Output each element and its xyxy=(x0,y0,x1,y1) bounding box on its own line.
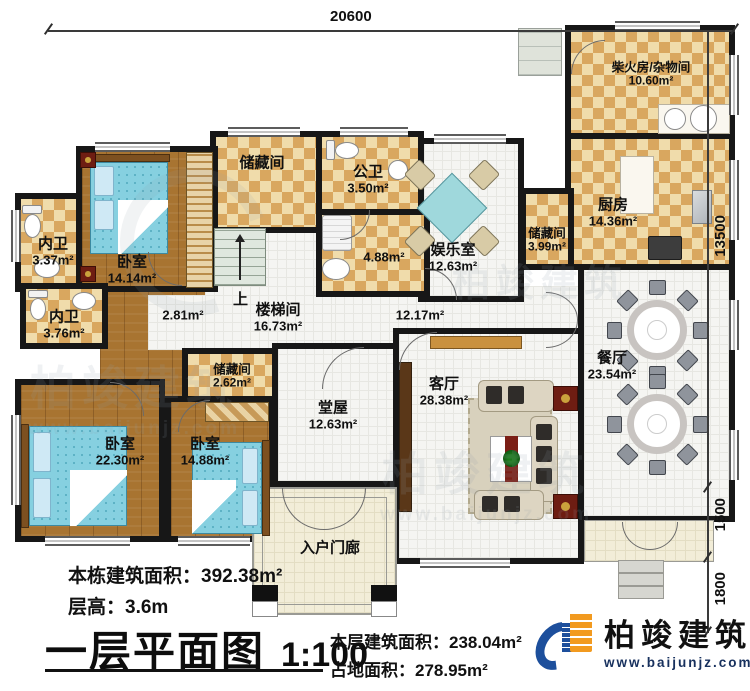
sink xyxy=(388,160,408,180)
dim-right-mid: 1500 xyxy=(712,498,729,531)
bed-headboard xyxy=(262,440,270,536)
dim-right-upper: 13500 xyxy=(712,215,729,257)
label-bath-337: 内卫 3.37m² xyxy=(32,236,73,267)
label-storage-kitchen: 储藏间 3.99m² xyxy=(528,226,566,253)
label-bath-376: 内卫 3.76m² xyxy=(43,309,84,340)
floor-area-stat: 本层建筑面积：238.04m² xyxy=(330,628,522,653)
label-main-hall: 堂屋 12.63m² xyxy=(309,400,357,431)
bed-sheet xyxy=(70,470,127,526)
logo-building-orange xyxy=(570,612,592,652)
window xyxy=(729,430,739,480)
kitchen-sink-unit xyxy=(692,190,712,224)
porch-pillar xyxy=(371,585,397,601)
bed-pillow xyxy=(242,490,258,526)
bed-headboard xyxy=(88,154,170,162)
label-stair-up: 上 xyxy=(233,288,248,309)
logo-url: www.baijunjz.com xyxy=(604,656,750,670)
window xyxy=(729,160,739,240)
right-dimension-line xyxy=(707,30,709,633)
bed-sheet xyxy=(192,480,236,534)
label-bedroom-1488: 卧室 14.88m² xyxy=(181,436,229,467)
toilet xyxy=(326,140,335,160)
dining-chair xyxy=(649,280,666,295)
label-dining: 餐厅 23.54m² xyxy=(588,350,636,381)
nightstand xyxy=(80,152,96,168)
dining-chair xyxy=(607,416,622,433)
sofa-cushion xyxy=(486,386,502,404)
window xyxy=(420,558,510,568)
dining-chair xyxy=(649,460,666,475)
porch-pillar xyxy=(252,601,278,617)
toilet xyxy=(28,290,48,298)
dim-tick xyxy=(44,23,53,35)
terrace-step xyxy=(618,560,664,573)
watermark: 柏竣建筑 www.baijunjz.com xyxy=(28,352,240,440)
land-area-stat: 占地面积：278.95m² xyxy=(330,656,488,681)
window xyxy=(178,536,250,546)
shoe-cabinet xyxy=(430,336,522,349)
bed-pillow xyxy=(94,200,114,230)
window xyxy=(434,134,506,144)
label-porch: 入户门廊 xyxy=(300,541,360,558)
label-firewood: 柴火房/杂物间 10.60m² xyxy=(612,60,690,87)
title-underline xyxy=(45,669,323,672)
round-sink xyxy=(690,105,717,132)
bed-pillow xyxy=(94,166,114,196)
bed-pillow xyxy=(242,448,258,484)
label-hall-1217: 12.17m² xyxy=(396,309,444,324)
window xyxy=(340,127,408,137)
window xyxy=(45,536,130,546)
label-public-bath: 公卫 3.50m² xyxy=(347,164,388,195)
porch-pillar xyxy=(371,601,397,617)
stove xyxy=(648,236,682,260)
window xyxy=(11,210,21,262)
floor-plan-canvas: 20600 13500 1500 1800 xyxy=(0,0,750,691)
company-logo: 柏竣建筑 www.baijunjz.com xyxy=(538,612,750,678)
terrace-step xyxy=(618,573,664,586)
floor-height-stat: 层高：3.6m xyxy=(68,592,168,619)
dining-chair xyxy=(649,374,666,389)
side-stoop xyxy=(518,28,562,76)
window xyxy=(95,142,170,152)
window xyxy=(228,127,300,137)
toilet xyxy=(22,205,42,214)
sink xyxy=(322,258,350,280)
dining-chair xyxy=(693,416,708,433)
nightstand xyxy=(80,266,96,282)
sink xyxy=(72,292,96,310)
terrace-step xyxy=(618,586,664,599)
logo-icon xyxy=(538,612,596,678)
building-area-stat: 本栋建筑面积：392.38m² xyxy=(68,561,282,588)
round-sink xyxy=(664,108,686,130)
bed-pillow xyxy=(33,478,51,518)
label-bedroom-1414: 卧室 14.14m² xyxy=(108,254,156,285)
label-storage-top: 储藏间 xyxy=(239,156,284,173)
label-stairwell: 楼梯间 16.73m² xyxy=(254,302,302,333)
dining-table xyxy=(627,394,687,454)
dining-chair xyxy=(693,322,708,339)
toilet xyxy=(335,142,359,159)
window xyxy=(11,415,21,505)
window xyxy=(729,300,739,350)
label-kitchen: 厨房 14.36m² xyxy=(589,197,637,228)
label-bath-488: 4.88m² xyxy=(363,251,404,266)
label-bedroom-2230: 卧室 22.30m² xyxy=(96,436,144,467)
sofa-cushion xyxy=(508,386,524,404)
dim-right-lower: 1800 xyxy=(712,572,729,605)
dining-chair xyxy=(607,322,622,339)
window xyxy=(729,55,739,115)
watermark: 柏竣建筑 xyxy=(452,252,628,307)
label-entertainment: 娱乐室 12.63m² xyxy=(429,242,477,273)
label-hall-281: 2.81m² xyxy=(162,309,203,324)
side-table xyxy=(553,386,578,411)
label-living: 客厅 28.38m² xyxy=(420,376,468,407)
dim-top-label: 20600 xyxy=(330,8,372,25)
watermark: 柏竣建筑 www.baijunjz.com xyxy=(380,438,592,526)
logo-name: 柏竣建筑 xyxy=(604,620,750,651)
top-dimension-line xyxy=(48,30,735,32)
label-storage-262: 储藏间 2.62m² xyxy=(213,362,251,389)
